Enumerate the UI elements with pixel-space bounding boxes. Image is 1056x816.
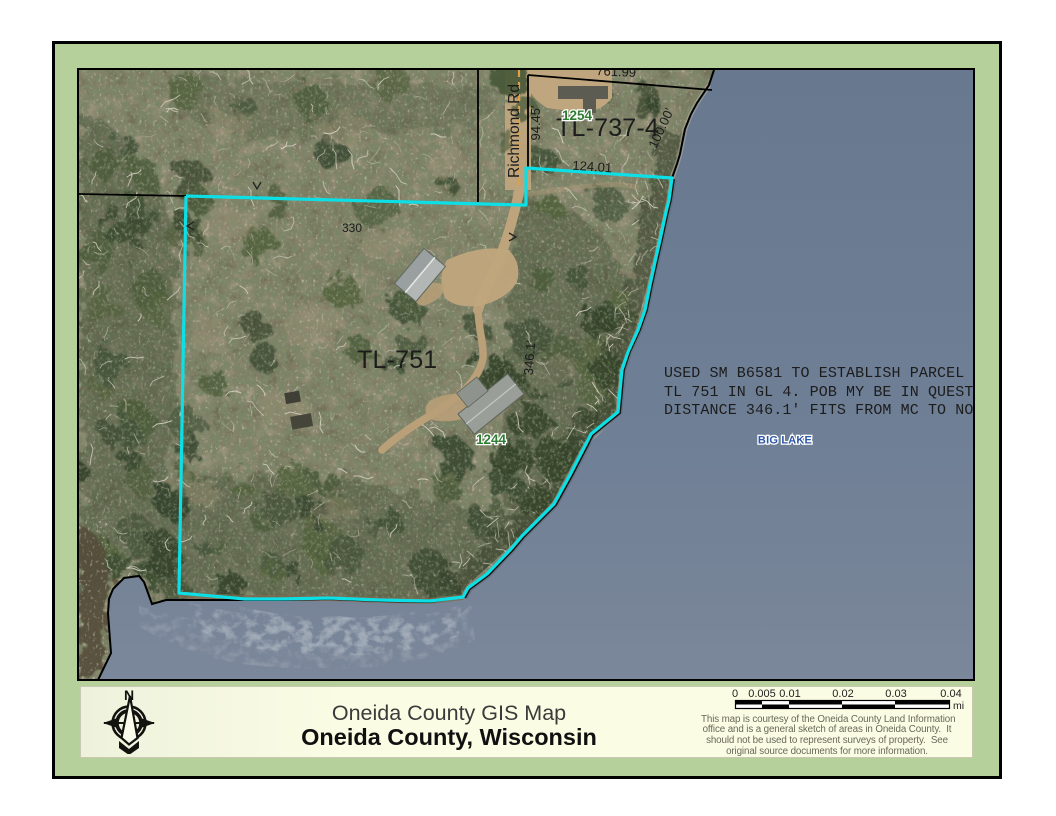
svg-text:Richmond Rd: Richmond Rd	[506, 84, 523, 178]
svg-text:BIG LAKE: BIG LAKE	[758, 435, 812, 447]
svg-text:94.45': 94.45'	[528, 105, 543, 140]
svg-text:0.005: 0.005	[748, 688, 776, 700]
svg-text:0.04: 0.04	[940, 688, 961, 700]
svg-text:330: 330	[342, 221, 362, 235]
svg-text:mi: mi	[953, 700, 964, 712]
svg-text:1254: 1254	[562, 108, 593, 123]
svg-text:0.03: 0.03	[885, 688, 906, 700]
svg-text:TL-751: TL-751	[357, 346, 437, 374]
svg-text:124.01: 124.01	[572, 158, 613, 176]
svg-text:TL 751 IN GL 4. POB MY BE IN Q: TL 751 IN GL 4. POB MY BE IN QUESTI	[664, 384, 973, 401]
svg-text:N: N	[124, 688, 134, 703]
svg-text:0: 0	[732, 688, 738, 700]
svg-text:346.1': 346.1'	[521, 340, 538, 376]
svg-text:USED SM B6581 TO ESTABLISH PAR: USED SM B6581 TO ESTABLISH PARCEL I	[664, 365, 973, 382]
svg-text:0.01: 0.01	[779, 688, 800, 700]
svg-text:0.02: 0.02	[832, 688, 853, 700]
svg-text:DISTANCE 346.1' FITS FROM MC T: DISTANCE 346.1' FITS FROM MC TO NO	[664, 402, 973, 419]
svg-text:1244: 1244	[476, 432, 507, 447]
